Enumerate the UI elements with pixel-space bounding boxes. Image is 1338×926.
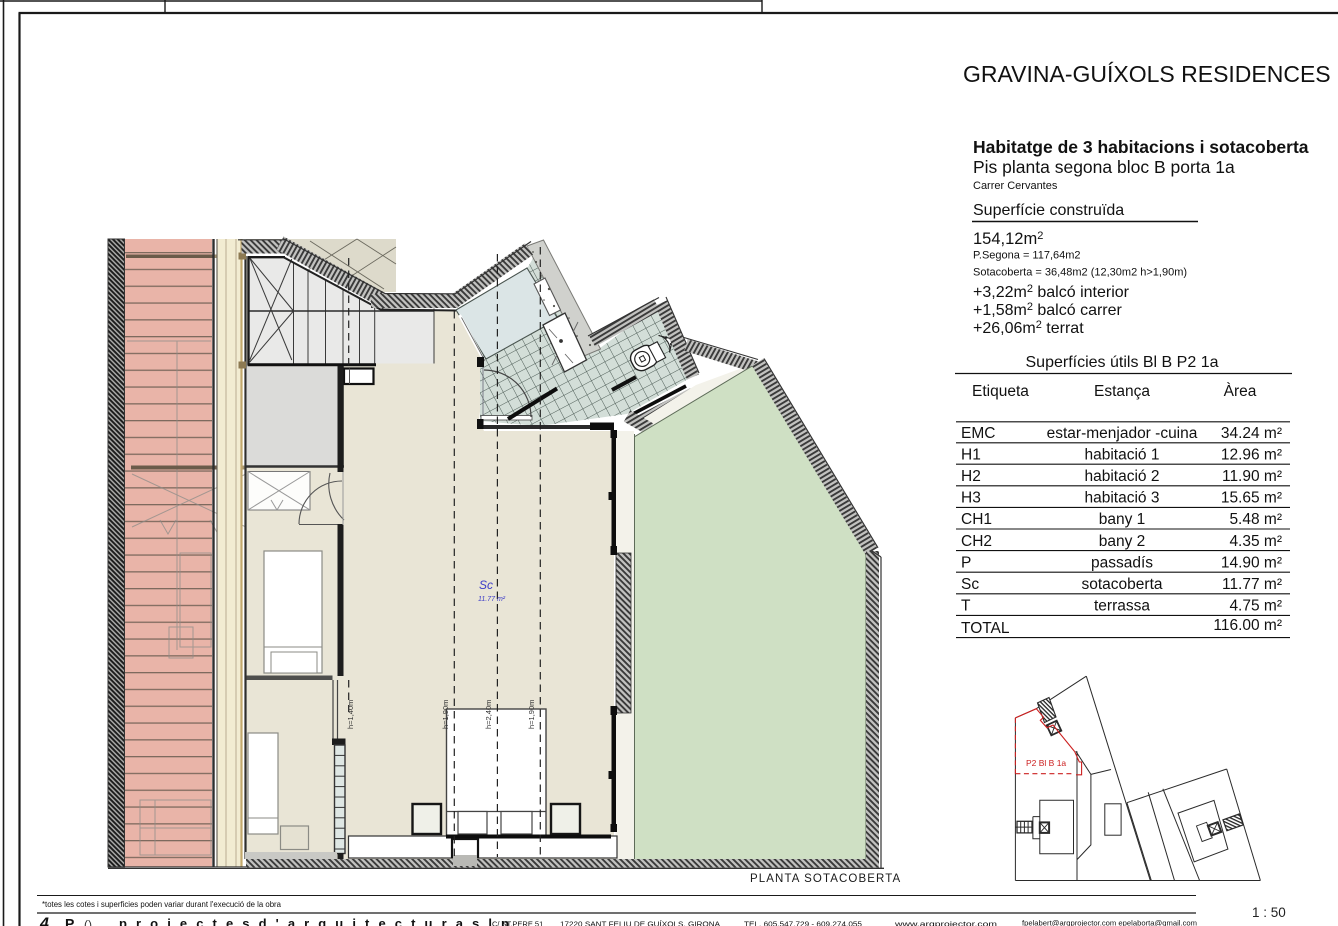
- svg-text:fpelabert@arqprojector.com ep: fpelabert@arqprojector.com epelaborta@gm…: [1022, 919, 1197, 926]
- svg-text:h=2,40m: h=2,40m: [484, 700, 493, 729]
- svg-text:4.75 m²: 4.75 m²: [1229, 598, 1282, 615]
- svg-text:17220 SANT FELIU DE GUÍXOLS, G: 17220 SANT FELIU DE GUÍXOLS, GIRONA: [560, 920, 720, 926]
- svg-text:4.35 m²: 4.35 m²: [1229, 533, 1282, 550]
- svg-text:habitació 1: habitació 1: [1085, 447, 1160, 464]
- svg-text:+26,06m2 terrat: +26,06m2 terrat: [973, 319, 1084, 337]
- svg-text:T: T: [961, 598, 971, 615]
- svg-text:habitació 3: habitació 3: [1085, 490, 1160, 507]
- svg-text:h=1,40m: h=1,40m: [346, 700, 355, 729]
- svg-text:GRAVINA-GUÍXOLS RESIDENCES: GRAVINA-GUÍXOLS RESIDENCES: [963, 61, 1331, 87]
- svg-text:EMC: EMC: [961, 425, 995, 442]
- svg-text:P: P: [961, 554, 971, 571]
- svg-text:CH2: CH2: [961, 533, 992, 550]
- svg-text:P: P: [65, 916, 74, 926]
- svg-text:12.96 m²: 12.96 m²: [1221, 447, 1282, 464]
- svg-text:14.90 m²: 14.90 m²: [1221, 554, 1282, 571]
- svg-text:bany 2: bany 2: [1099, 533, 1146, 550]
- svg-text:11.77 m²: 11.77 m²: [1222, 576, 1282, 593]
- svg-text:*totes les cotes i superficies: *totes les cotes i superficies poden var…: [42, 900, 282, 909]
- svg-text:H2: H2: [961, 468, 981, 485]
- svg-text:15.65 m²: 15.65 m²: [1221, 490, 1282, 507]
- svg-text:11.90 m²: 11.90 m²: [1222, 468, 1282, 485]
- svg-text:154,12m2: 154,12m2: [973, 230, 1043, 248]
- svg-text:Sc: Sc: [479, 578, 493, 592]
- svg-text:habitació 2: habitació 2: [1085, 468, 1160, 485]
- svg-text:Estança: Estança: [1094, 383, 1150, 400]
- svg-text:Etiqueta: Etiqueta: [972, 383, 1029, 400]
- svg-text:C/ ST.PERE 51: C/ ST.PERE 51: [492, 920, 543, 926]
- svg-text:(): (): [84, 918, 92, 926]
- svg-text:passadís: passadís: [1091, 554, 1153, 571]
- svg-text:Sc: Sc: [961, 576, 979, 593]
- svg-text:P.Segona = 117,64m2: P.Segona = 117,64m2: [973, 250, 1081, 262]
- svg-text:Àrea: Àrea: [1224, 383, 1257, 400]
- svg-text:TEL. 605.547.729 - 609.274.055: TEL. 605.547.729 - 609.274.055: [744, 920, 862, 926]
- svg-text:5.48 m²: 5.48 m²: [1229, 511, 1282, 528]
- svg-text:H1: H1: [961, 447, 981, 464]
- svg-text:h=1,90m: h=1,90m: [527, 700, 536, 729]
- svg-text:bany 1: bany 1: [1099, 511, 1146, 528]
- svg-text:1 : 50: 1 : 50: [1252, 905, 1286, 920]
- svg-text:Carrer Cervantes: Carrer Cervantes: [973, 180, 1058, 192]
- svg-text:Superfícies útils Bl B P2 1a: Superfícies útils Bl B P2 1a: [1026, 354, 1219, 371]
- svg-text:www.arqprojector.com: www.arqprojector.com: [894, 920, 997, 926]
- svg-text:estar-menjador -cuina: estar-menjador -cuina: [1047, 425, 1198, 442]
- svg-text:P2 Bl B 1a: P2 Bl B 1a: [1026, 758, 1066, 768]
- svg-text:Sotacoberta = 36,48m2 (12,30m2: Sotacoberta = 36,48m2 (12,30m2 h>1,90m): [973, 267, 1187, 279]
- svg-text:+3,22m2 balcó interior: +3,22m2 balcó interior: [973, 283, 1130, 301]
- svg-text:+1,58m2 balcó carrer: +1,58m2 balcó carrer: [973, 301, 1123, 319]
- svg-text:11.77 m²: 11.77 m²: [478, 596, 506, 603]
- svg-text:34.24 m²: 34.24 m²: [1221, 425, 1282, 442]
- svg-text:4: 4: [39, 916, 49, 926]
- svg-text:TOTAL: TOTAL: [961, 620, 1010, 637]
- svg-text:CH1: CH1: [961, 511, 992, 528]
- svg-text:Superfície construïda: Superfície construïda: [973, 202, 1124, 219]
- svg-text:sotacoberta: sotacoberta: [1082, 576, 1163, 593]
- svg-text:PLANTA SOTACOBERTA: PLANTA SOTACOBERTA: [750, 873, 901, 885]
- svg-text:h=1,90m: h=1,90m: [441, 700, 450, 729]
- svg-text:H3: H3: [961, 490, 981, 507]
- svg-text:Habitatge de 3 habitacions i s: Habitatge de 3 habitacions i sotacoberta: [973, 137, 1309, 157]
- svg-text:116.00 m²: 116.00 m²: [1213, 617, 1282, 634]
- svg-text:terrassa: terrassa: [1094, 598, 1150, 615]
- svg-text:Pis planta segona bloc B porta: Pis planta segona bloc B porta 1a: [973, 157, 1235, 177]
